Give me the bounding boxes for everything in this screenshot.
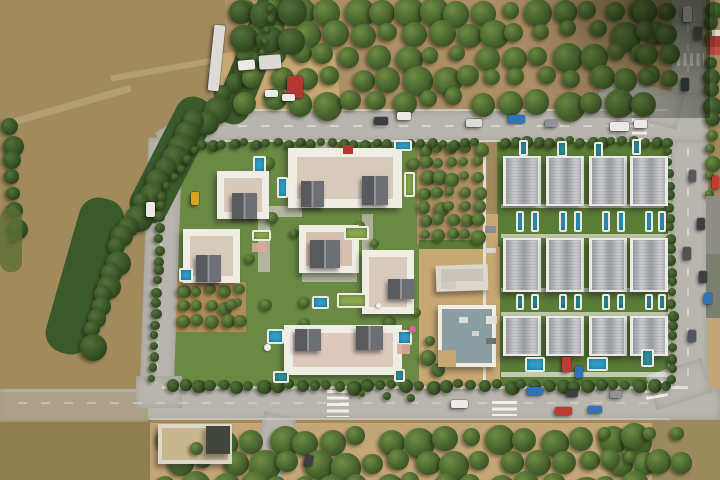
townhouse-pool (658, 294, 666, 310)
compound-orchard-east (459, 229, 470, 240)
right-edge-trees (705, 144, 715, 154)
compound-orchard-southwest (222, 314, 235, 327)
car (697, 218, 705, 230)
orchard-top (367, 45, 391, 69)
gable-roof (232, 193, 257, 219)
car (146, 202, 155, 217)
storage-container (486, 338, 496, 344)
hedge-compound-top (460, 138, 470, 148)
edge-greens (4, 169, 19, 184)
hedge-west (156, 201, 166, 211)
garden-tree (408, 158, 420, 170)
car (712, 176, 719, 189)
hedge-south (321, 380, 331, 390)
hedge-south (375, 380, 384, 389)
car (265, 90, 278, 97)
pool-deck (252, 243, 267, 252)
garden-tree (370, 239, 379, 248)
gable-roof (196, 255, 221, 282)
hedge-south (243, 381, 253, 391)
car (699, 271, 707, 283)
car (683, 247, 691, 260)
orchard-top (351, 24, 376, 49)
hedge-townhouse-top (607, 137, 615, 145)
hedge-south (581, 380, 594, 393)
orchard-corner-dark (278, 0, 307, 26)
swimming-pool (253, 156, 266, 173)
hedge-south (465, 380, 476, 391)
townhouse-roof (506, 240, 538, 290)
car (282, 94, 295, 101)
townhouse-pool (645, 211, 653, 232)
hedge-south (219, 380, 230, 391)
path-bushes (267, 15, 275, 23)
car (688, 330, 696, 342)
hedge-townhouse-top (617, 136, 626, 145)
gable-roof (295, 329, 321, 351)
hedge-south (335, 381, 346, 392)
townhouse-roof (592, 158, 624, 204)
trailer (259, 54, 282, 70)
gable-roof (388, 279, 414, 299)
hedge-south (648, 379, 662, 393)
townhouse-roof (549, 240, 581, 290)
townhouse-roof (506, 158, 538, 204)
compound-orchard-east (448, 214, 460, 226)
compound-orchard-east (448, 228, 459, 239)
hedge-west (154, 211, 164, 221)
townhouse-pool (632, 139, 641, 155)
townhouse-pool (641, 349, 654, 367)
swimming-pool (394, 140, 412, 151)
car (555, 407, 572, 415)
townhouse-roof (549, 318, 581, 354)
hedge-compound-top (416, 139, 425, 148)
garden-path (302, 272, 357, 282)
hedge-west (151, 309, 162, 320)
hedge-west (154, 234, 163, 243)
townhouse-pool (587, 357, 608, 371)
scatter-trees-bottomright (670, 427, 683, 440)
hedge-compound-top (240, 138, 248, 146)
scatter-trees-bottomright (643, 427, 656, 440)
swimming-pool (179, 268, 193, 282)
car (610, 391, 622, 398)
orchard-bottom (346, 426, 364, 444)
compound-orchard-east (460, 187, 471, 198)
hedge-curve (163, 182, 171, 190)
car (575, 366, 583, 378)
townhouse (503, 156, 541, 206)
pool-foundation-arm (441, 281, 456, 289)
hedge-south (596, 379, 608, 391)
townhouse-roof (549, 158, 581, 204)
townhouse-pool (531, 211, 539, 232)
hedge-compound-top (274, 138, 282, 146)
orchard-top (420, 90, 437, 107)
garden-tree (245, 254, 255, 264)
hedge-compound-top (328, 138, 337, 147)
swimming-pool (267, 329, 284, 344)
gable-roof (356, 326, 383, 350)
crosswalk (492, 401, 517, 416)
compound-orchard-southwest (191, 314, 203, 326)
pool-foundation-inner (441, 269, 483, 281)
orchard-top (313, 92, 343, 122)
garden-tree (299, 297, 310, 308)
terrace-strip (501, 372, 671, 377)
van (610, 122, 629, 131)
townhouse-roof (633, 240, 665, 290)
hedge-south (479, 380, 491, 392)
compound-orchard-east (445, 173, 459, 187)
compound-orchard-east (418, 188, 431, 201)
construction-notch (438, 350, 456, 367)
garden-tree (425, 336, 435, 346)
hedge-south (257, 380, 272, 395)
compound-orchard-east (432, 229, 445, 242)
right-edge-lot (706, 254, 720, 318)
orchard-bottom (387, 449, 409, 471)
garden-tree (226, 299, 237, 310)
aerial-photograph (0, 0, 720, 480)
swimming-pool (337, 293, 367, 308)
hedge-south (453, 379, 462, 388)
car (545, 120, 557, 127)
hedge-south (608, 380, 618, 390)
gable-roof (362, 176, 388, 205)
orchard-top (340, 90, 361, 111)
gable-roof (310, 240, 340, 268)
cloud-shadow (545, 0, 715, 80)
orchard-corner-dark (229, 0, 253, 24)
scatter-trees-bottomright (624, 451, 636, 463)
orchard-top (369, 0, 395, 26)
townhouse (589, 238, 627, 292)
townhouse-pool (574, 294, 582, 310)
lane-dashes (687, 148, 689, 384)
townhouse-pool (525, 357, 545, 372)
orchard-bottom (469, 451, 488, 470)
compound-orchard-southwest (191, 286, 202, 297)
swimming-pool (252, 230, 271, 241)
swimming-pool (277, 177, 288, 198)
townhouse (630, 238, 668, 292)
car (689, 170, 696, 182)
hedge-east (666, 214, 675, 223)
road-bottom-worn-left (0, 392, 148, 422)
street-trees (407, 394, 415, 402)
crosswalk (327, 390, 349, 417)
orchard-bottom (416, 451, 441, 476)
hedge-south (414, 381, 424, 391)
orchard-top (378, 23, 396, 41)
hedge-west (150, 331, 158, 339)
townhouse-pool (516, 211, 524, 232)
gable-roof (301, 181, 324, 207)
lane-dashes (238, 125, 653, 127)
orchard-top (422, 47, 438, 63)
red-pergola (343, 145, 353, 154)
car (634, 120, 647, 128)
orchard-bottom (401, 472, 419, 480)
orchard-bottom (569, 427, 593, 451)
townhouse (589, 316, 627, 356)
compound-orchard-east (445, 186, 454, 195)
storage-container (485, 248, 496, 253)
swimming-pool (312, 296, 329, 309)
hedge-townhouse-top (500, 138, 511, 149)
green-patch (0, 208, 22, 272)
car (451, 400, 468, 408)
hedge-west (155, 246, 165, 256)
hedge-townhouse-top (544, 138, 555, 149)
townhouse-pool (617, 294, 625, 310)
storage-container (485, 226, 496, 233)
hedge-west (153, 276, 161, 284)
hedge-west (150, 352, 160, 362)
hedge-east (668, 321, 678, 331)
car (466, 119, 482, 127)
compound-orchard-east (420, 156, 432, 168)
townhouse-roof (506, 318, 538, 354)
hedge-south (230, 381, 243, 394)
townhouse (546, 316, 584, 356)
orchard-top (242, 67, 263, 88)
townhouse (503, 238, 541, 292)
compound-orchard-east (460, 201, 470, 211)
orchard-corner-dark (278, 28, 305, 55)
car (374, 117, 388, 125)
townhouse-roof (592, 318, 624, 354)
orchard-top (312, 43, 333, 64)
car (704, 293, 712, 304)
compound-orchard-east (421, 215, 432, 226)
orchard-bottom (501, 451, 524, 474)
hedge-east (667, 375, 676, 384)
townhouse-pool (602, 211, 610, 232)
hedge-compound-top (296, 138, 306, 148)
compound-orchard-southwest (234, 284, 244, 294)
storage-container (486, 316, 497, 324)
townhouse (589, 156, 627, 206)
roof-block (472, 331, 479, 336)
townhouse-pool (645, 294, 653, 310)
orchard-top (338, 47, 358, 67)
street-trees (359, 391, 365, 397)
curb-line (150, 418, 670, 420)
hedge-south (516, 379, 526, 389)
edge-greens (1, 118, 18, 135)
patio-umbrella (264, 344, 271, 351)
excavator (191, 192, 199, 205)
townhouse (630, 156, 668, 206)
hedge-east (668, 364, 677, 373)
townhouse-pool (516, 294, 524, 310)
hedge-south (620, 381, 629, 390)
orchard-top (375, 67, 400, 92)
hedge-west (150, 321, 159, 330)
right-edge-trees (705, 156, 720, 172)
hedge-west (150, 342, 158, 350)
compound-orchard-east (421, 230, 430, 239)
townhouse-pool (557, 141, 567, 157)
car (397, 112, 411, 120)
orchard-corner-dark (230, 25, 258, 53)
car (527, 387, 543, 395)
compound-orchard-southwest (205, 284, 215, 294)
townhouse-pool (574, 211, 582, 232)
hedge-compound-top (261, 139, 269, 147)
hedge-townhouse-top (662, 138, 673, 149)
compound-orchard-east (473, 156, 483, 166)
compound-orchard-southwest (191, 300, 202, 311)
hedge-south (633, 379, 647, 393)
path-bushes (263, 26, 271, 34)
hedge-south (180, 379, 191, 390)
scatter-trees-bottomright (647, 449, 672, 474)
trailer (238, 59, 256, 70)
townhouse-roof (633, 158, 665, 204)
hedge-compound-top (217, 140, 226, 149)
hedge-compound-top (317, 138, 325, 146)
townhouse (503, 316, 541, 356)
right-edge-lot (706, 196, 720, 254)
edge-greens (3, 151, 21, 169)
hedge-west (154, 265, 163, 274)
compound-orchard-southwest (177, 285, 190, 298)
swimming-pool (344, 226, 369, 240)
scrub-bottom-left (0, 420, 150, 480)
orchard-bottom (552, 451, 576, 475)
swimming-pool (404, 172, 415, 197)
pool-deck (397, 344, 410, 354)
car (588, 406, 602, 413)
scatter-trees-bottomright (600, 449, 620, 469)
townhouse-roof (592, 240, 624, 290)
townhouse (546, 238, 584, 292)
hedge-west (151, 288, 161, 298)
swimming-pool (273, 371, 289, 383)
townhouse-pool (602, 294, 610, 310)
hedge-compound-top (470, 138, 479, 147)
car (566, 390, 578, 397)
townhouse (546, 156, 584, 206)
patio-umbrella (409, 326, 416, 333)
townhouse-pool (617, 211, 625, 232)
townhouse-pool (559, 211, 567, 232)
compound-orchard-east (418, 201, 431, 214)
townhouse-pool (519, 140, 528, 156)
roof-block (459, 317, 468, 323)
car (562, 357, 571, 372)
farm-building (206, 426, 230, 454)
orchard-top (320, 66, 339, 85)
garden-tree (260, 299, 272, 311)
farm-tree (190, 442, 203, 455)
swimming-pool (394, 369, 405, 382)
garden-tree (290, 229, 299, 238)
townhouse-pool (658, 211, 666, 232)
townhouse-pool (531, 294, 539, 310)
hedge-townhouse-top (566, 136, 574, 144)
compound-orchard-southwest (178, 300, 189, 311)
compound-orchard-east (474, 200, 486, 212)
compound-orchard-southwest (218, 285, 231, 298)
compound-orchard-southwest (205, 315, 219, 329)
townhouse-pool (559, 294, 567, 310)
street-trees (383, 392, 391, 400)
patio-umbrella (376, 303, 381, 308)
townhouse-pool (594, 142, 603, 158)
